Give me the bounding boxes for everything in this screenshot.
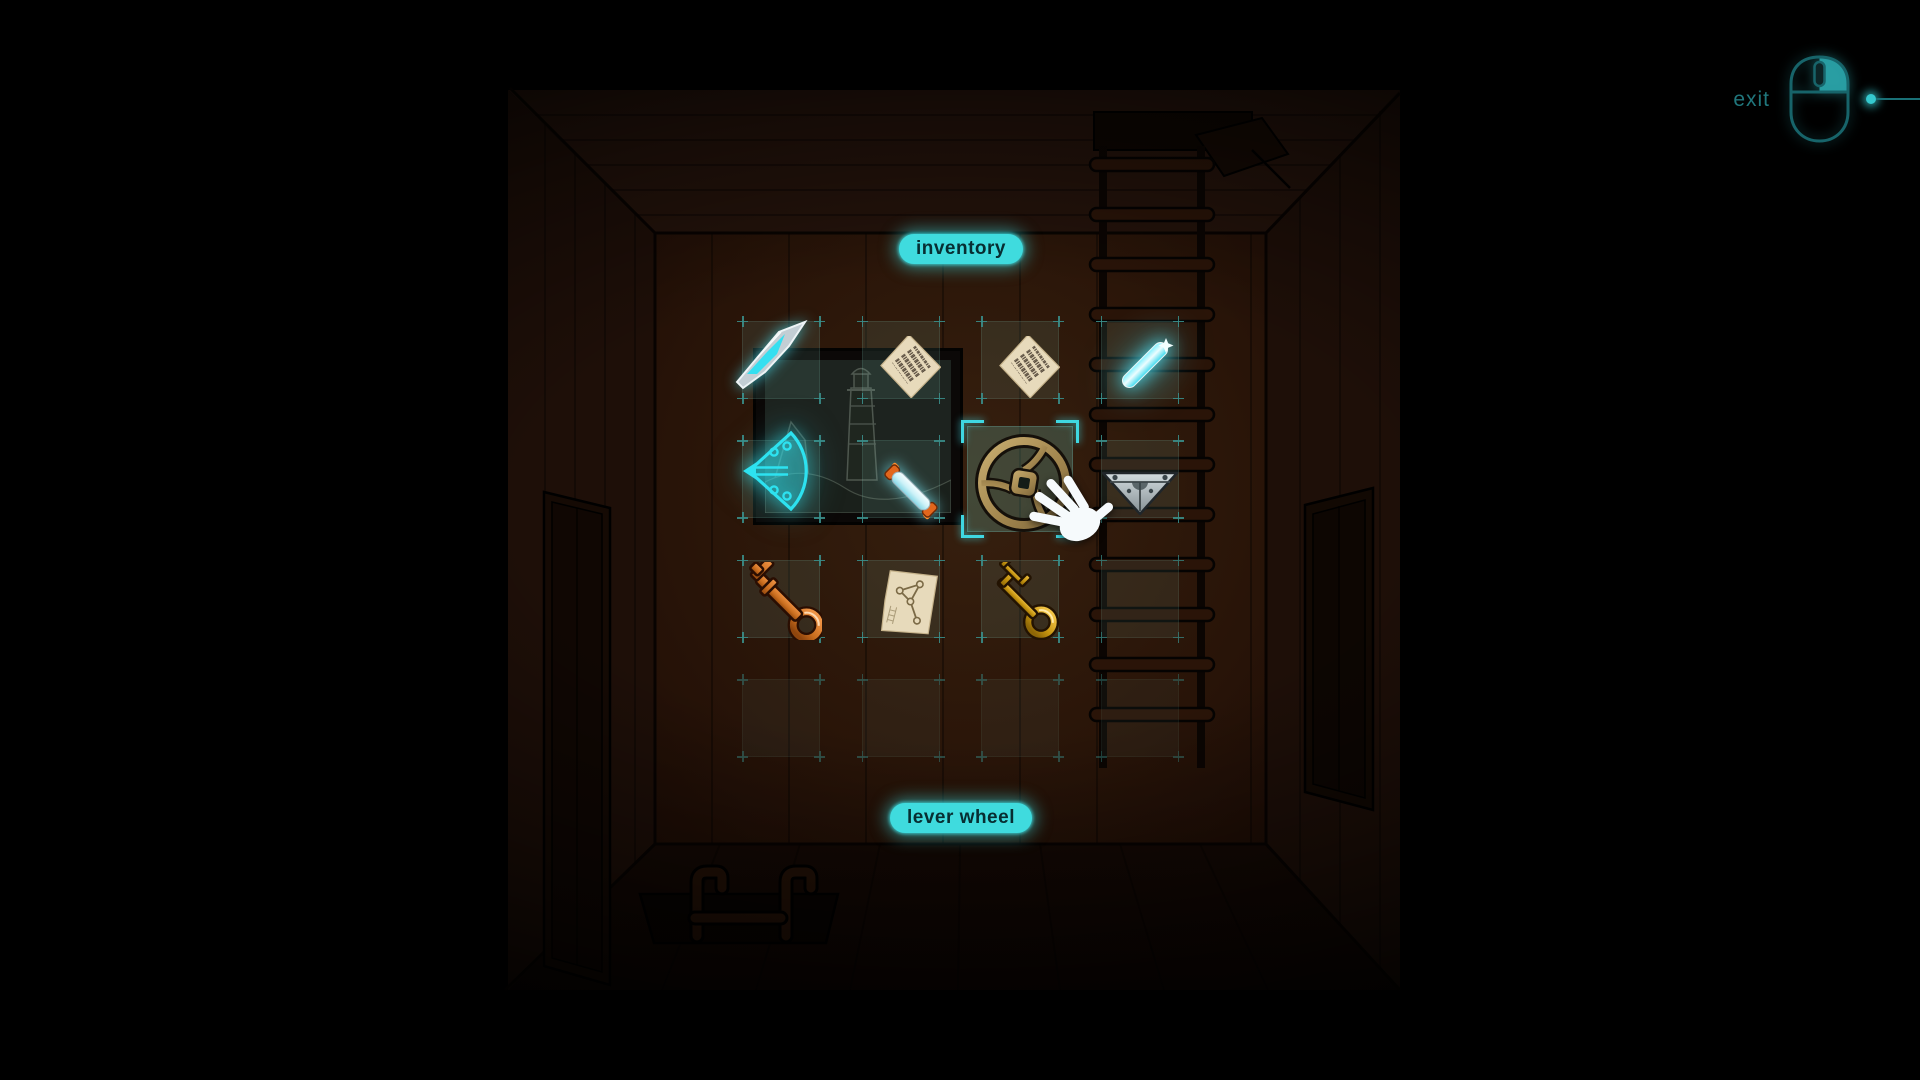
slot-corner-mark bbox=[857, 674, 868, 685]
glass-shard-item[interactable] bbox=[731, 318, 817, 396]
game-screen: { "ui": { "inventory_label": "inventory"… bbox=[0, 0, 1920, 1080]
copper-key-icon bbox=[744, 562, 822, 640]
gold-key-icon bbox=[983, 562, 1061, 640]
inventory-grid bbox=[0, 0, 1920, 1080]
inventory-slot-r1c2[interactable] bbox=[862, 321, 940, 399]
glowing-fan-icon bbox=[741, 423, 811, 519]
fluorescent-tube-item[interactable] bbox=[878, 458, 944, 524]
slot-corner-mark bbox=[857, 632, 868, 643]
slot-corner-mark bbox=[1096, 435, 1107, 446]
slot-corner-mark bbox=[934, 555, 945, 566]
exit-label[interactable]: exit bbox=[1705, 88, 1770, 112]
code-paper-2-icon bbox=[998, 336, 1060, 398]
inventory-slot-r4c3[interactable] bbox=[981, 679, 1059, 757]
slot-corner-mark bbox=[1173, 435, 1184, 446]
slot-corner-mark bbox=[976, 674, 987, 685]
map-paper-icon bbox=[875, 566, 941, 640]
slot-corner-mark bbox=[857, 512, 868, 523]
slot-corner-mark bbox=[934, 674, 945, 685]
slot-corner-mark bbox=[857, 751, 868, 762]
map-paper-item[interactable] bbox=[875, 566, 941, 640]
slot-corner-mark bbox=[1053, 674, 1064, 685]
slot-corner-mark bbox=[934, 751, 945, 762]
slot-corner-mark bbox=[1173, 674, 1184, 685]
slot-corner-mark bbox=[814, 435, 825, 446]
exit-indicator-dot bbox=[1866, 94, 1876, 104]
slot-corner-mark bbox=[1173, 632, 1184, 643]
exit-indicator-line bbox=[1876, 98, 1920, 100]
slot-corner-mark bbox=[1173, 316, 1184, 327]
inventory-slot-r3c4[interactable] bbox=[1101, 560, 1179, 638]
glow-stick-item[interactable] bbox=[1110, 330, 1180, 400]
slot-corner-mark bbox=[934, 316, 945, 327]
slot-corner-mark bbox=[976, 393, 987, 404]
code-paper-1-item[interactable] bbox=[879, 336, 941, 398]
inventory-slot-r4c1[interactable] bbox=[742, 679, 820, 757]
selected-item-label: lever wheel bbox=[890, 803, 1032, 833]
inventory-slot-r3c1[interactable] bbox=[742, 560, 820, 638]
slot-corner-mark bbox=[737, 674, 748, 685]
inventory-slot-r1c1[interactable] bbox=[742, 321, 820, 399]
inventory-slot-r2c1[interactable] bbox=[742, 440, 820, 518]
slot-corner-mark bbox=[1173, 751, 1184, 762]
slot-corner-mark bbox=[857, 555, 868, 566]
mouse-icon bbox=[1787, 54, 1852, 144]
code-paper-1-icon bbox=[879, 336, 941, 398]
inventory-slot-r4c2[interactable] bbox=[862, 679, 940, 757]
slot-corner-mark bbox=[857, 435, 868, 446]
inventory-slot-r1c4[interactable] bbox=[1101, 321, 1179, 399]
glass-shard-icon bbox=[731, 318, 817, 396]
slot-corner-mark bbox=[976, 316, 987, 327]
glow-stick-icon bbox=[1110, 330, 1180, 400]
inventory-slot-r4c4[interactable] bbox=[1101, 679, 1179, 757]
inventory-slot-r3c3[interactable] bbox=[981, 560, 1059, 638]
slot-corner-mark bbox=[1096, 674, 1107, 685]
slot-corner-mark bbox=[1096, 751, 1107, 762]
gold-key-item[interactable] bbox=[983, 562, 1061, 640]
slot-corner-mark bbox=[857, 393, 868, 404]
slot-corner-mark bbox=[1096, 316, 1107, 327]
slot-corner-mark bbox=[976, 751, 987, 762]
slot-corner-mark bbox=[814, 674, 825, 685]
slot-corner-mark bbox=[814, 751, 825, 762]
glowing-fan-item[interactable] bbox=[741, 423, 811, 519]
copper-key-item[interactable] bbox=[744, 562, 822, 640]
code-paper-2-item[interactable] bbox=[998, 336, 1060, 398]
inventory-slot-r1c3[interactable] bbox=[981, 321, 1059, 399]
slot-corner-mark bbox=[1173, 555, 1184, 566]
slot-corner-mark bbox=[857, 316, 868, 327]
slot-corner-mark bbox=[1096, 632, 1107, 643]
inventory-slot-r2c2[interactable] bbox=[862, 440, 940, 518]
slot-corner-mark bbox=[737, 751, 748, 762]
scroll-wheel-icon bbox=[1815, 62, 1825, 86]
inventory-slot-r3c2[interactable] bbox=[862, 560, 940, 638]
slot-corner-mark bbox=[934, 435, 945, 446]
hand-cursor bbox=[1022, 466, 1114, 558]
slot-corner-mark bbox=[1096, 393, 1107, 404]
fluorescent-tube-icon bbox=[878, 458, 944, 524]
slot-corner-mark bbox=[1053, 316, 1064, 327]
slot-corner-mark bbox=[1053, 751, 1064, 762]
slot-corner-mark bbox=[814, 512, 825, 523]
